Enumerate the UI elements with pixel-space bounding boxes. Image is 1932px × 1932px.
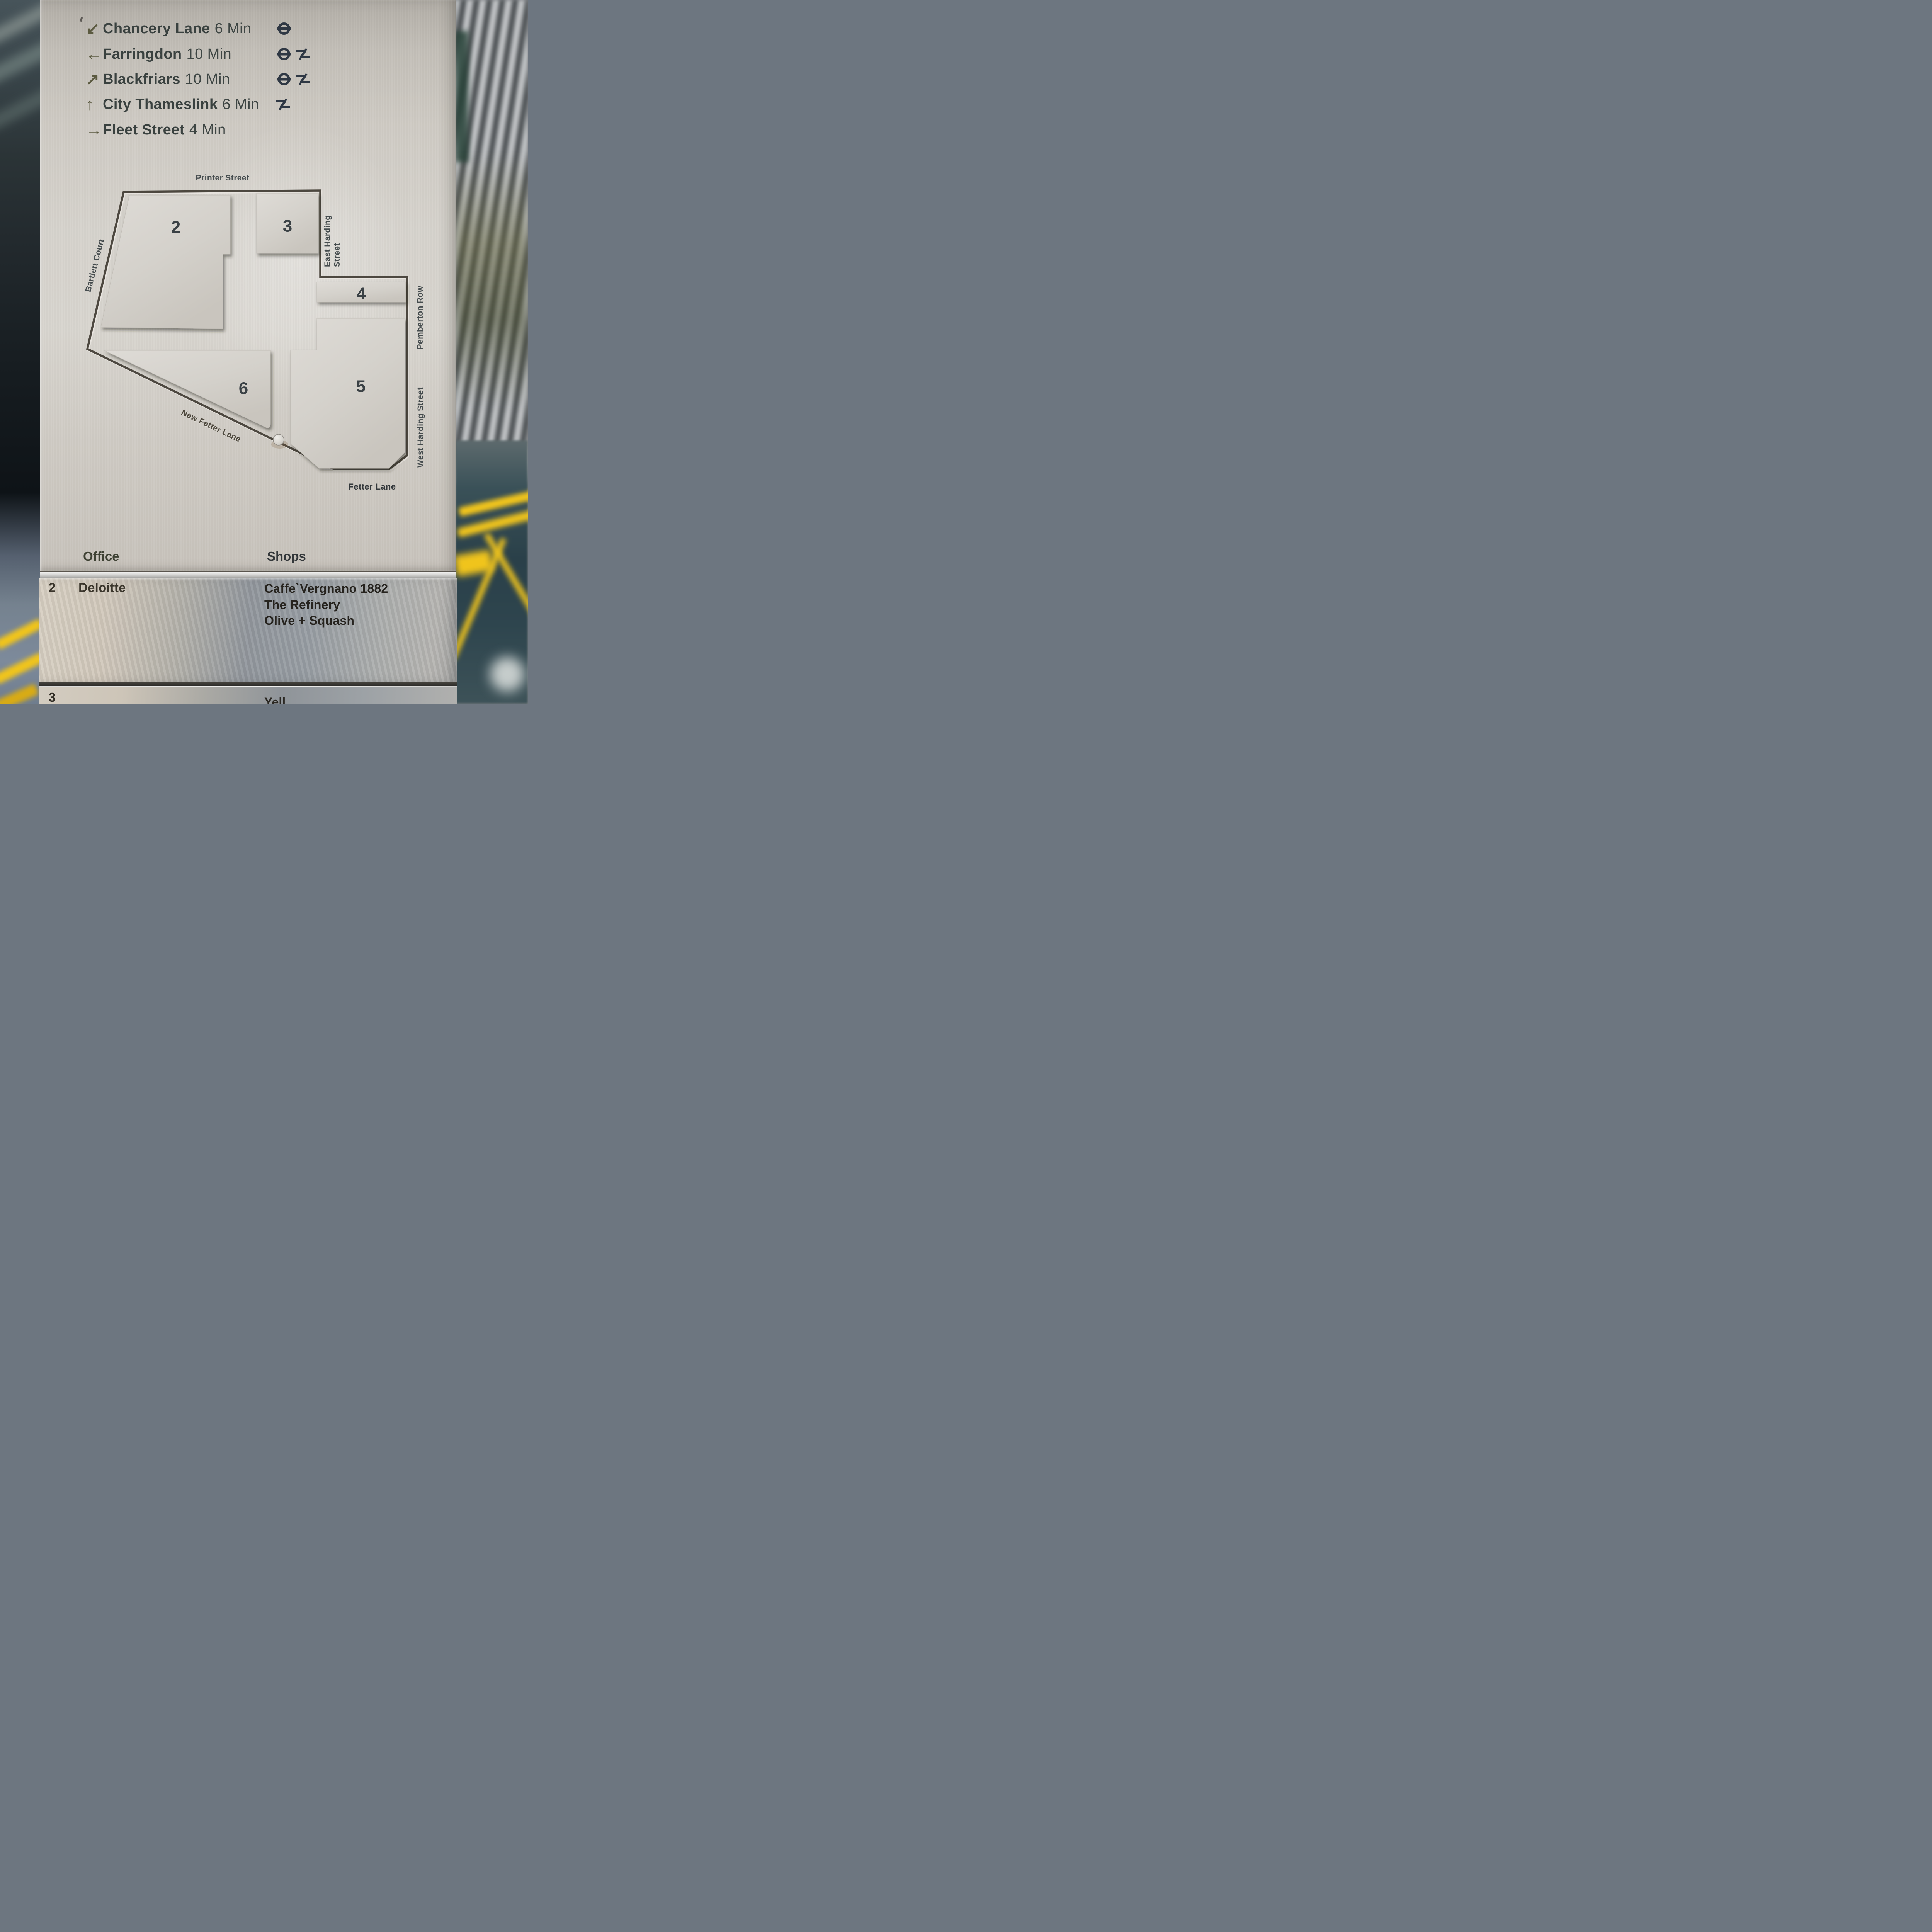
street-sign-photo: ↙ Chancery Lane 6 Min ← Farringdon 10 Mi…: [0, 0, 528, 704]
arrow-left-icon: ←: [86, 46, 103, 62]
walk-time: 6 Min: [222, 96, 259, 113]
destination-name: Fleet Street: [103, 122, 185, 138]
direction-row: ↙ Chancery Lane 6 Min: [86, 16, 364, 41]
yellow-chair-slat: [0, 618, 44, 650]
building-number: 6: [239, 379, 248, 398]
underground-icon: [277, 21, 291, 36]
arrow-right-icon: →: [86, 122, 103, 138]
street-label-east-harding-street: East Harding Street: [323, 201, 342, 267]
arrow-up-icon: ↑: [86, 96, 103, 112]
shop-name: The Refinery: [264, 597, 388, 613]
street-label-fetter-lane: Fetter Lane: [333, 482, 411, 492]
street-label-printer-street: Printer Street: [182, 173, 263, 183]
office-column-header: Office: [83, 549, 119, 564]
walk-time: 6 Min: [215, 20, 252, 37]
yellow-chair-slat: [0, 684, 39, 704]
underground-icon: [277, 47, 291, 61]
destination-name: Farringdon: [103, 46, 182, 63]
panel-bevel-edge: [40, 572, 456, 578]
band-groove: [39, 682, 457, 686]
underground-icon: [277, 72, 291, 87]
direction-row: ← Farringdon 10 Min: [86, 41, 364, 67]
national-rail-icon: [295, 73, 311, 85]
label-line: Street: [332, 201, 342, 267]
building-number: 4: [357, 284, 366, 303]
shops-column-header: Shops: [267, 549, 306, 564]
direction-row: ↗ Blackfriars 10 Min: [86, 66, 364, 92]
arrow-down-left-icon: ↙: [86, 20, 103, 37]
walk-time: 10 Min: [185, 71, 230, 88]
blur-highlight: [490, 657, 525, 692]
shop-list: Caffe`Vergnano 1882 The Refinery Olive +…: [264, 581, 388, 629]
destination-name: Blackfriars: [103, 71, 180, 88]
shop-name-partial: Yell: [264, 695, 286, 704]
walk-time: 4 Min: [189, 122, 226, 138]
street-label-west-harding-street: West Harding Street: [416, 381, 425, 474]
building-number: 2: [171, 218, 180, 237]
building-5-footprint: [291, 318, 405, 468]
label-line: East Harding: [323, 201, 332, 267]
national-rail-icon: [295, 48, 311, 60]
building-number: 3: [283, 217, 292, 236]
glass-strip: [455, 31, 468, 162]
destination-name: Chancery Lane: [103, 20, 210, 37]
street-label-pemberton-row: Pemberton Row: [416, 279, 425, 356]
office-tenant-name: Deloitte: [78, 580, 126, 595]
building-number-badge: 2: [43, 580, 61, 595]
arrow-up-right-icon: ↗: [86, 71, 103, 87]
direction-row: ↑ City Thameslink 6 Min: [86, 92, 364, 117]
olive-tint: [455, 155, 528, 410]
national-rail-icon: [275, 99, 291, 111]
shop-name: Caffe`Vergnano 1882: [264, 581, 388, 597]
destination-name: City Thameslink: [103, 96, 218, 113]
building-number-badge: 3: [43, 690, 61, 704]
site-map: 2 3 4 5 6: [75, 174, 419, 479]
direction-row: → Fleet Street 4 Min: [86, 117, 364, 143]
background-right-building: [455, 0, 528, 704]
walk-time: 10 Min: [187, 46, 231, 63]
directory-band-building-3: [39, 687, 457, 704]
shop-name: Olive + Squash: [264, 613, 388, 629]
location-peg: [273, 434, 284, 445]
building-number: 5: [356, 377, 366, 396]
